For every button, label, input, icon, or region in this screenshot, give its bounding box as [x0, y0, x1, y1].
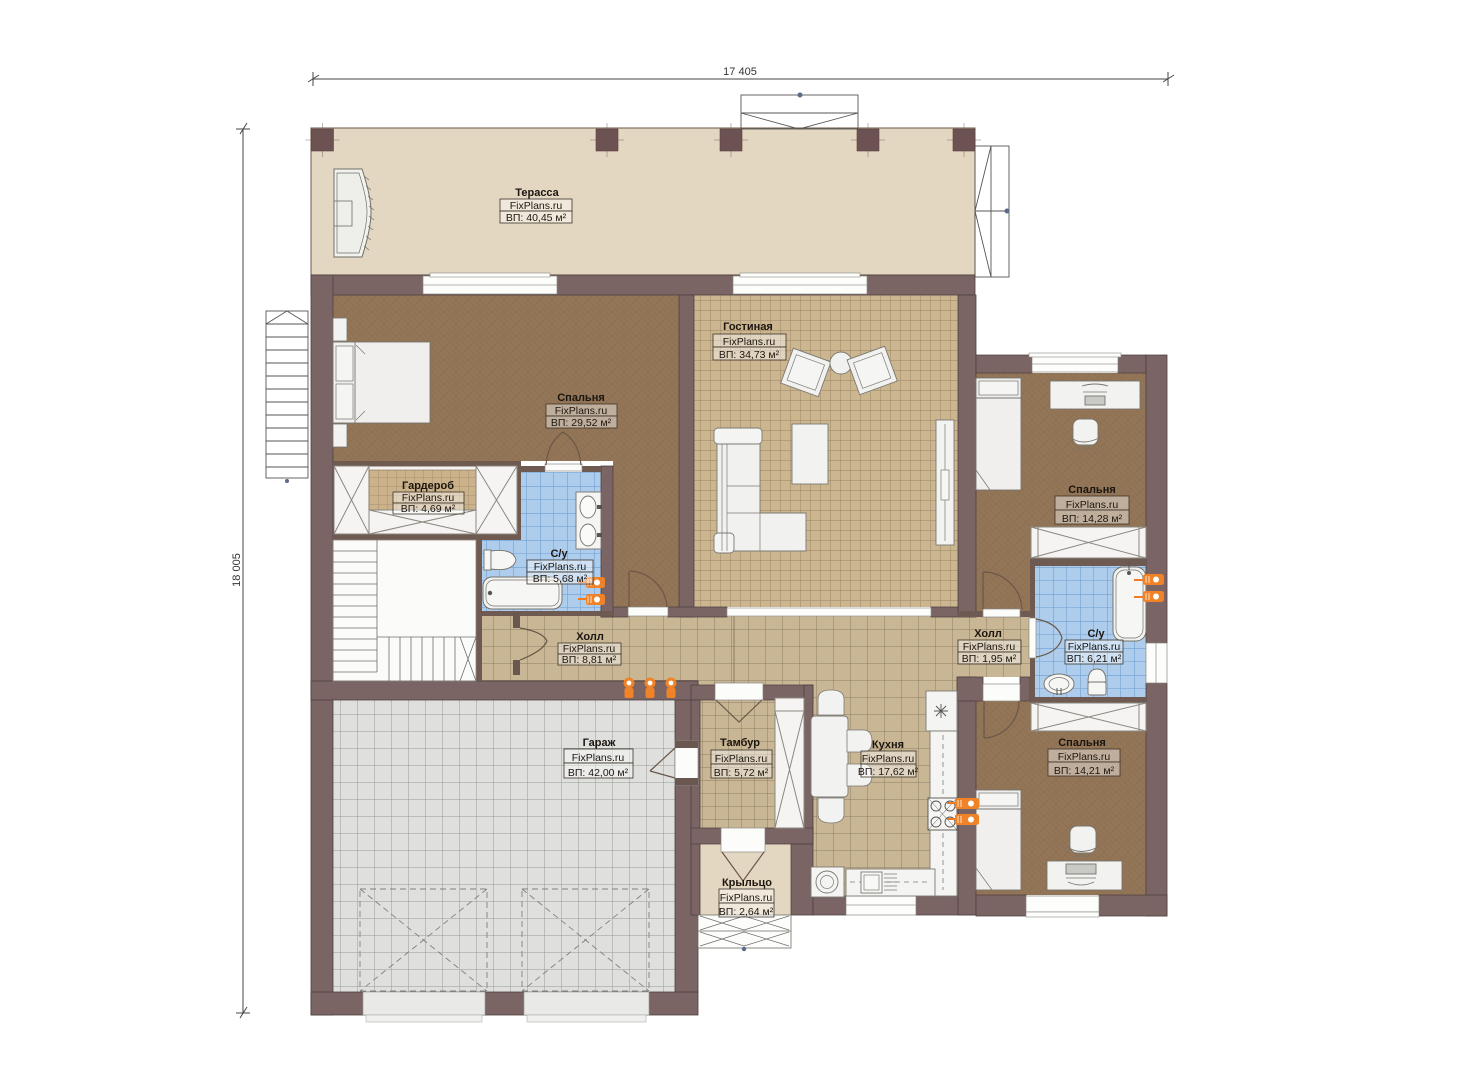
svg-text:ВП: 42,00 м²: ВП: 42,00 м² — [568, 767, 629, 779]
svg-text:FixPlans.ru: FixPlans.ru — [723, 336, 776, 348]
svg-text:FixPlans.ru: FixPlans.ru — [510, 200, 563, 212]
svg-text:ВП: 40,45 м²: ВП: 40,45 м² — [506, 212, 567, 224]
svg-text:Терасса: Терасса — [515, 187, 559, 199]
svg-text:FixPlans.ru: FixPlans.ru — [862, 753, 915, 765]
svg-text:ВП: 29,52 м²: ВП: 29,52 м² — [551, 417, 612, 429]
svg-text:ВП: 6,21 м²: ВП: 6,21 м² — [1067, 653, 1122, 665]
svg-text:ВП: 2,64 м²: ВП: 2,64 м² — [719, 906, 774, 918]
svg-text:Холл: Холл — [974, 628, 1002, 640]
svg-text:FixPlans.ru: FixPlans.ru — [1058, 751, 1111, 763]
svg-text:FixPlans.ru: FixPlans.ru — [572, 752, 625, 764]
svg-text:18 005: 18 005 — [231, 553, 243, 587]
svg-text:Спальня: Спальня — [1068, 484, 1116, 496]
svg-text:Гостиная: Гостиная — [723, 321, 773, 333]
svg-text:ВП: 8,81 м²: ВП: 8,81 м² — [562, 654, 617, 666]
svg-text:Крыльцо: Крыльцо — [722, 877, 772, 889]
svg-text:С/у: С/у — [550, 548, 568, 560]
svg-text:ВП: 17,62 м²: ВП: 17,62 м² — [858, 766, 919, 778]
svg-text:FixPlans.ru: FixPlans.ru — [963, 641, 1016, 653]
svg-text:ВП: 5,72 м²: ВП: 5,72 м² — [714, 767, 769, 779]
svg-text:FixPlans.ru: FixPlans.ru — [715, 753, 768, 765]
svg-text:Холл: Холл — [576, 631, 604, 643]
svg-text:ВП: 14,21 м²: ВП: 14,21 м² — [1054, 765, 1115, 777]
svg-text:Гардероб: Гардероб — [402, 480, 454, 492]
svg-text:Гараж: Гараж — [583, 737, 616, 749]
svg-text:Кухня: Кухня — [872, 739, 904, 751]
svg-text:FixPlans.ru: FixPlans.ru — [555, 405, 608, 417]
svg-text:С/у: С/у — [1087, 628, 1105, 640]
svg-text:ВП: 34,73 м²: ВП: 34,73 м² — [719, 349, 780, 361]
svg-text:FixPlans.ru: FixPlans.ru — [720, 892, 773, 904]
svg-text:ВП: 1,95 м²: ВП: 1,95 м² — [962, 653, 1017, 665]
svg-text:FixPlans.ru: FixPlans.ru — [1066, 499, 1119, 511]
svg-text:FixPlans.ru: FixPlans.ru — [1068, 641, 1121, 653]
svg-text:Спальня: Спальня — [557, 392, 605, 404]
svg-text:17 405: 17 405 — [723, 66, 757, 78]
svg-text:ВП: 4,69 м²: ВП: 4,69 м² — [401, 503, 456, 515]
svg-text:Тамбур: Тамбур — [720, 737, 760, 749]
svg-text:FixPlans.ru: FixPlans.ru — [534, 561, 587, 573]
svg-text:ВП: 14,28 м²: ВП: 14,28 м² — [1062, 513, 1123, 525]
svg-text:Спальня: Спальня — [1058, 737, 1106, 749]
svg-text:ВП: 5,68 м²: ВП: 5,68 м² — [533, 573, 588, 585]
